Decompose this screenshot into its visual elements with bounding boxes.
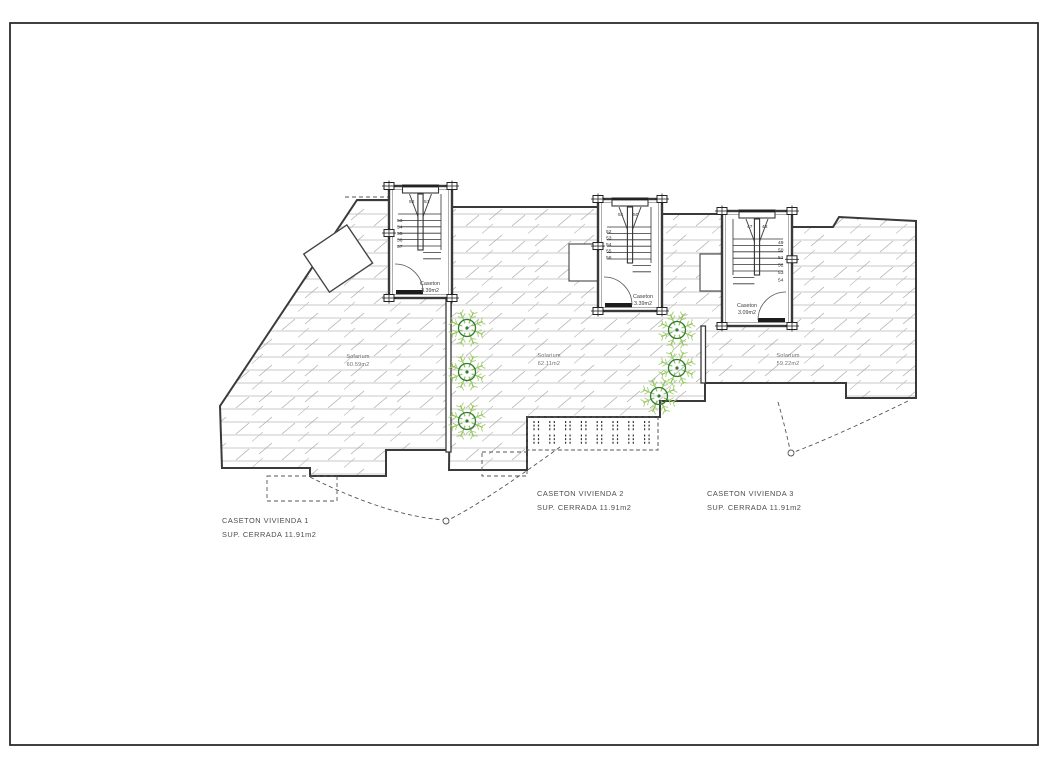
solarium-3-area: 59.22m2 <box>777 361 800 367</box>
dashed-arc-right-b <box>794 401 908 452</box>
stair-step-number: 51 <box>618 212 624 218</box>
unit-labels: CASETON VIVIENDA 1 SUP. CERRADA 11.91m2 … <box>222 489 801 539</box>
stair-step-number: 49 <box>778 240 784 246</box>
stair-step-number: 57 <box>397 244 403 250</box>
divider-wall-2 <box>701 326 706 383</box>
unit-3-subtitle: SUP. CERRADA 11.91m2 <box>707 503 801 512</box>
unit-2-subtitle: SUP. CERRADA 11.91m2 <box>537 503 631 512</box>
stair-step-number: 48 <box>762 224 768 230</box>
dashed-arc-right-a <box>778 402 790 450</box>
pergola-louvres <box>527 417 658 450</box>
stair-step-number: 51 <box>778 255 784 261</box>
solarium-3-name: Solarium <box>776 353 800 359</box>
solarium-2-area: 62.11m2 <box>538 361 560 367</box>
opening-beside-stair-3 <box>700 254 722 291</box>
stair-step-number: 50 <box>778 248 784 254</box>
roof-plan-drawing: 52 51 53 54 55 56 57 Caseton 3.39m2 51 5… <box>0 0 1048 768</box>
stair-step-number: 54 <box>606 242 612 248</box>
terrace-solarium-2-3 <box>449 207 916 470</box>
unit-1-title: CASETON VIVIENDA 1 <box>222 516 309 525</box>
arc-pivot-left <box>443 518 449 524</box>
stair-step-number: 50 <box>633 212 639 218</box>
stair-caseton-2: 51 50 52 53 54 55 56 Caseton 3.39m2 <box>591 194 669 317</box>
caseton-label: Caseton <box>633 294 653 300</box>
stair-step-number: 52 <box>606 229 612 235</box>
stair-step-number: 51 <box>424 199 430 205</box>
stair-step-number: 56 <box>397 238 403 244</box>
stair-step-number: 55 <box>397 231 403 237</box>
solarium-2-name: Solarium <box>537 353 561 359</box>
solarium-1-name: Solarium <box>346 354 370 360</box>
dashed-awning-1 <box>267 476 337 501</box>
divider-wall-1 <box>446 298 451 452</box>
stair-step-number: 52 <box>409 199 415 205</box>
dashed-arc-left-a <box>310 477 443 520</box>
stair-step-number: 53 <box>397 218 403 224</box>
stair-step-number: 53 <box>606 236 612 242</box>
unit-1-subtitle: SUP. CERRADA 11.91m2 <box>222 530 316 539</box>
stair-step-number: 54 <box>778 278 784 284</box>
stair-step-number: 55 <box>606 249 612 255</box>
caseton-label: Caseton <box>737 303 757 309</box>
caseton-label: Caseton <box>420 281 440 287</box>
stair-step-number: 47 <box>747 224 753 230</box>
caseton-area: 3.09m2 <box>738 310 756 316</box>
caseton-area: 3.39m2 <box>634 301 652 307</box>
stair-step-number: 53 <box>778 270 784 276</box>
unit-2-title: CASETON VIVIENDA 2 <box>537 489 624 498</box>
plan-sheet: 52 51 53 54 55 56 57 Caseton 3.39m2 51 5… <box>0 0 1048 768</box>
caseton-area: 3.39m2 <box>421 288 439 294</box>
arc-pivot-right <box>788 450 794 456</box>
stair-caseton-3: 47 48 49 50 51 52 53 54 Caseton 3.09m2 <box>715 206 799 332</box>
stair-step-number: 52 <box>778 263 784 269</box>
stair-step-number: 54 <box>397 225 403 231</box>
stair-caseton-1: 52 51 53 54 55 56 57 Caseton 3.39m2 <box>382 181 459 304</box>
stair-step-number: 56 <box>606 255 612 261</box>
solarium-1-area: 60.59m2 <box>347 362 370 368</box>
unit-3-title: CASETON VIVIENDA 3 <box>707 489 794 498</box>
